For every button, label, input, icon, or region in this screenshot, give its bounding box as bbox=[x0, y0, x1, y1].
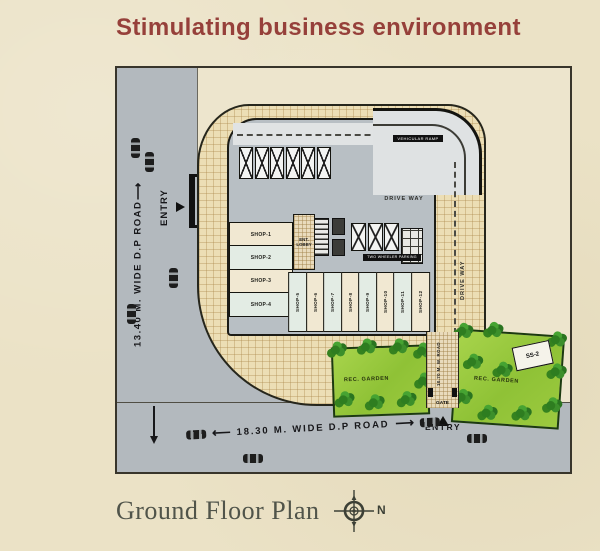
tree-icon bbox=[487, 325, 497, 335]
compass-icon bbox=[332, 489, 376, 538]
bottom-shop-row: SHOP-5SHOP-6SHOP-7SHOP-8SHOP-9SHOP-10SHO… bbox=[288, 272, 430, 332]
shop-unit: SHOP-2 bbox=[229, 245, 293, 270]
two-wheeler-stall bbox=[351, 223, 366, 251]
left-entry-label: ENTRY bbox=[159, 168, 170, 226]
drive-path-dashed-line bbox=[454, 162, 456, 334]
garden-label: REC. GARDEN bbox=[344, 376, 389, 384]
car-icon bbox=[145, 152, 154, 172]
substation-box: SS-2 bbox=[512, 340, 554, 371]
parking-stall bbox=[270, 147, 284, 179]
entry-arrow-icon bbox=[176, 202, 190, 212]
shop-unit: SHOP-9 bbox=[358, 272, 377, 332]
recreation-garden-left: REC. GARDEN bbox=[331, 344, 430, 417]
car-icon bbox=[131, 138, 140, 158]
tree-icon bbox=[331, 345, 340, 354]
left-gate-icon bbox=[189, 174, 195, 228]
shop-unit: SHOP-6 bbox=[306, 272, 325, 332]
shop-unit: SHOP-3 bbox=[229, 269, 293, 294]
shop-unit: SHOP-4 bbox=[229, 292, 293, 317]
direction-arrow-icon: ⟶ bbox=[131, 183, 145, 200]
shop-unit: SHOP-8 bbox=[341, 272, 360, 332]
bottom-gate-label: GATE bbox=[427, 401, 458, 406]
parking-stall bbox=[301, 147, 315, 179]
parking-stall bbox=[239, 147, 253, 179]
direction-arrow-icon: ⟵ bbox=[212, 424, 231, 441]
tree-icon bbox=[546, 401, 556, 411]
bottom-gate-icon bbox=[428, 388, 433, 397]
side-road-label: 10.70 M. W. ROAD bbox=[436, 336, 441, 386]
tree-icon bbox=[361, 342, 370, 351]
shop-unit: SHOP-11 bbox=[393, 272, 412, 332]
entry-drive-strip: 10.70 M. W. ROAD GATE bbox=[426, 332, 459, 408]
page-title: Stimulating business environment bbox=[116, 14, 521, 42]
two-wheeler-stalls bbox=[351, 223, 399, 251]
lift bbox=[332, 218, 345, 235]
tree-icon bbox=[393, 342, 402, 351]
shop-unit: SHOP-7 bbox=[323, 272, 342, 332]
tree-icon bbox=[481, 408, 491, 418]
tree-icon bbox=[369, 398, 378, 407]
plan-title: Ground Floor Plan bbox=[116, 496, 320, 526]
tree-icon bbox=[417, 346, 426, 355]
car-icon bbox=[467, 434, 487, 443]
tree-icon bbox=[551, 335, 561, 345]
compass-north-label: N bbox=[377, 503, 386, 517]
driveway-label: DRIVE WAY bbox=[367, 196, 441, 202]
car-icon bbox=[169, 268, 178, 288]
car-icon bbox=[127, 304, 136, 324]
parking-stall bbox=[317, 147, 331, 179]
entrance-lobby: ENT. LOBBY bbox=[293, 214, 315, 270]
shop-unit: SHOP-1 bbox=[229, 222, 293, 247]
tree-icon bbox=[338, 395, 347, 404]
shop-unit: SHOP-12 bbox=[411, 272, 430, 332]
driveway-side-label: DRIVE WAY bbox=[460, 216, 466, 300]
ramp-label: VEHICULAR RAMP bbox=[393, 135, 443, 142]
car-icon bbox=[420, 417, 440, 427]
two-wheeler-stall bbox=[368, 223, 383, 251]
parking-stall bbox=[286, 147, 300, 179]
tree-icon bbox=[496, 365, 506, 375]
left-shop-column: SHOP-1SHOP-2SHOP-3SHOP-4 bbox=[229, 222, 293, 317]
lobby-label: LOBBY bbox=[296, 242, 311, 247]
car-icon bbox=[186, 429, 206, 439]
left-road-label: 13.40 M. WIDE D.P ROAD ⟶ bbox=[131, 132, 145, 398]
direction-arrow-icon: ⟶ bbox=[395, 415, 414, 432]
garden-label: REC. GARDEN bbox=[474, 376, 519, 385]
vehicular-ramp bbox=[373, 108, 482, 195]
tree-icon bbox=[515, 409, 525, 419]
bottom-gate-icon bbox=[452, 388, 457, 397]
shop-unit: SHOP-10 bbox=[376, 272, 395, 332]
two-wheeler-stall bbox=[384, 223, 399, 251]
ground-floor-plan: 13.40 M. WIDE D.P ROAD ⟶ ENTRY GATE bbox=[115, 66, 572, 474]
tree-icon bbox=[467, 357, 477, 367]
lift bbox=[332, 239, 345, 256]
parking-stalls bbox=[239, 147, 331, 179]
tree-icon bbox=[401, 395, 410, 404]
staircase bbox=[314, 218, 329, 256]
car-icon bbox=[243, 454, 263, 463]
tree-icon bbox=[550, 367, 560, 377]
brochure-page: Stimulating business environment 13.40 M… bbox=[0, 0, 600, 551]
shop-unit: SHOP-5 bbox=[288, 272, 307, 332]
two-wheeler-label: TWO WHEELER PARKING bbox=[363, 254, 421, 261]
parking-stall bbox=[255, 147, 269, 179]
